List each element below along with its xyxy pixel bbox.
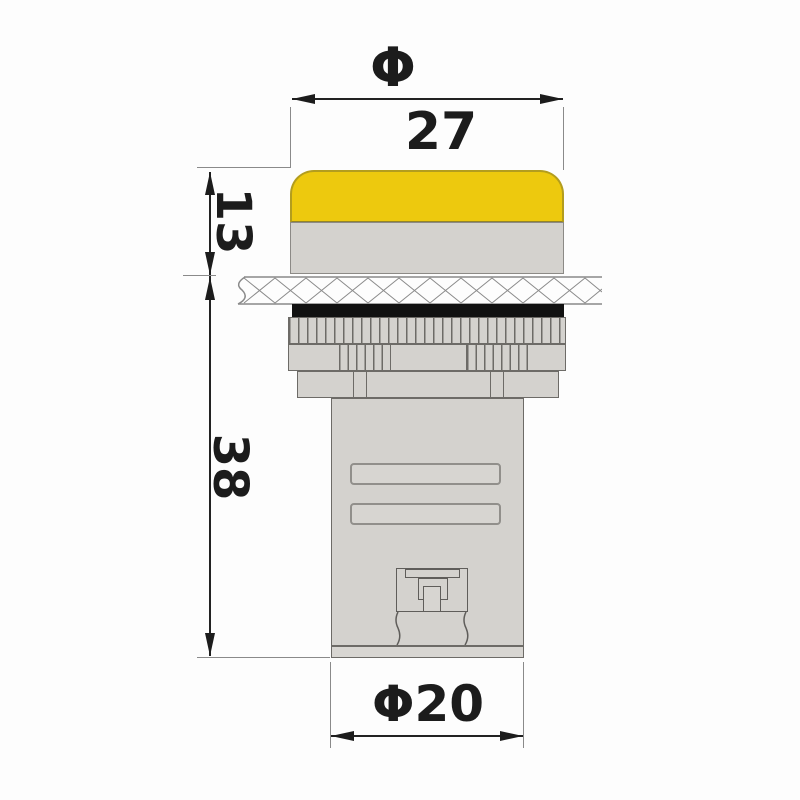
knurled-ring-lower bbox=[288, 344, 566, 371]
terminal-top-bar bbox=[405, 569, 460, 578]
left-ext-line-top bbox=[197, 167, 290, 168]
diameter-symbol-label: Φ bbox=[370, 41, 416, 95]
bottom-dim-arrow-left-icon bbox=[331, 731, 354, 741]
top-dimension-line bbox=[292, 98, 563, 100]
top-dim-arrow-right-icon bbox=[540, 94, 563, 104]
knurl-segment-right bbox=[467, 345, 531, 370]
panel-cross-section bbox=[230, 276, 602, 305]
drawing-canvas: Φ 27 bbox=[0, 0, 800, 800]
body-depth-value: 38 bbox=[206, 434, 254, 501]
panel-hatch-lines-b bbox=[244, 278, 602, 303]
cap-height-arrow-down-icon bbox=[205, 252, 215, 275]
terminal-wire-right-icon bbox=[462, 612, 470, 645]
terminal-wire-left-icon bbox=[394, 612, 402, 645]
terminal-pin bbox=[423, 586, 441, 612]
thread-diameter-value: Φ20 bbox=[372, 679, 484, 729]
cap-diameter-value: 27 bbox=[405, 106, 477, 158]
nut-facet-line-left bbox=[390, 345, 391, 370]
nut-facet-line-right bbox=[466, 345, 467, 370]
body-base-plate bbox=[331, 646, 524, 658]
lens-cap bbox=[290, 170, 564, 223]
hex-facet-line-2 bbox=[366, 372, 367, 397]
knurled-ring-upper bbox=[288, 317, 566, 344]
bottom-ext-line-right bbox=[523, 662, 524, 748]
body-depth-arrow-down-icon bbox=[205, 633, 215, 656]
top-ext-line-left bbox=[290, 107, 291, 168]
hex-nut-band bbox=[297, 371, 559, 398]
lens-cap-base bbox=[290, 222, 564, 274]
body-vent-slot-1 bbox=[350, 463, 501, 485]
panel-break-icon bbox=[238, 277, 245, 304]
panel-hatch-lines-a bbox=[244, 278, 602, 303]
hex-facet-line-1 bbox=[353, 372, 354, 397]
body-depth-arrow-up-icon bbox=[205, 277, 215, 300]
hex-facet-line-4 bbox=[503, 372, 504, 397]
top-ext-line-right bbox=[563, 107, 564, 170]
rubber-gasket bbox=[292, 304, 564, 317]
bottom-dim-arrow-right-icon bbox=[500, 731, 523, 741]
left-ext-line-bottom bbox=[197, 657, 330, 658]
lamp-body bbox=[331, 398, 524, 646]
body-vent-slot-2 bbox=[350, 503, 501, 525]
knurl-segment-left bbox=[339, 345, 391, 370]
bottom-dimension-line bbox=[331, 735, 523, 737]
hex-facet-line-3 bbox=[490, 372, 491, 397]
left-dim-tick bbox=[183, 275, 216, 276]
top-dim-arrow-left-icon bbox=[292, 94, 315, 104]
cap-height-value: 13 bbox=[209, 188, 257, 255]
